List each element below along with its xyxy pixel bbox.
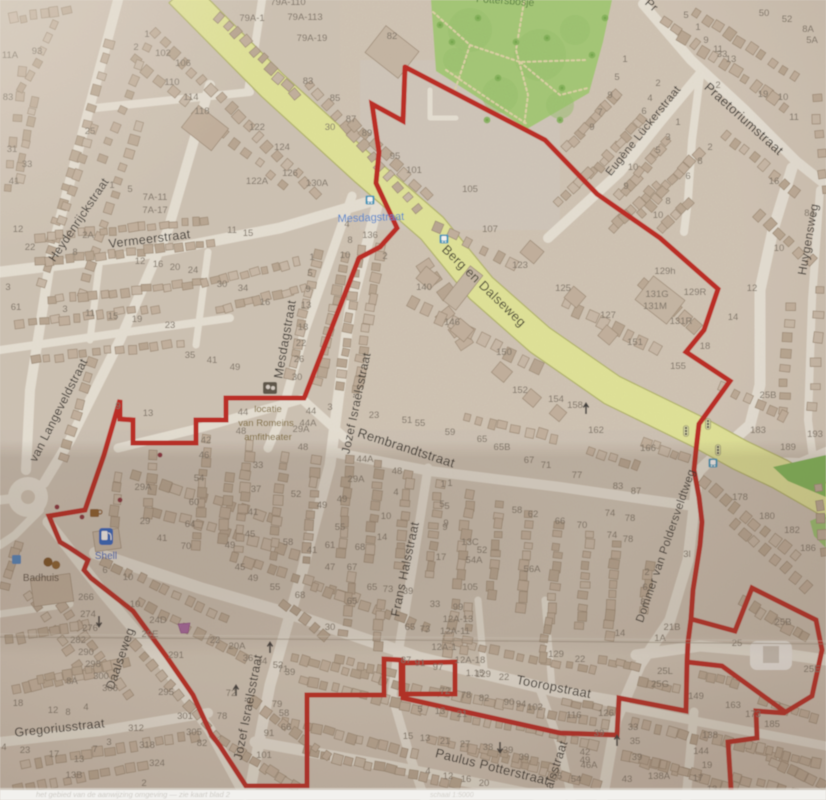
svg-text:schaal 1:5000: schaal 1:5000 <box>430 792 474 799</box>
svg-text:het gebied van de aanwijzing o: het gebied van de aanwijzing omgeving — … <box>36 790 231 799</box>
